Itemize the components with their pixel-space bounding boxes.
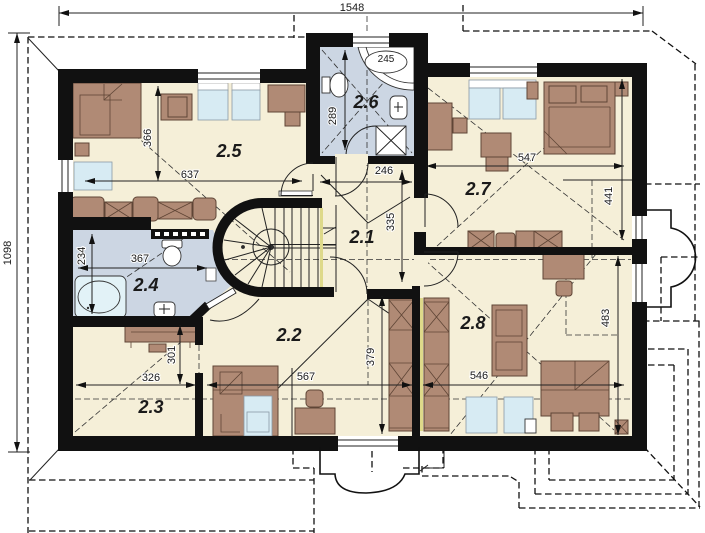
svg-text:2.8: 2.8	[459, 313, 485, 333]
svg-text:2.2: 2.2	[275, 325, 301, 345]
svg-text:366: 366	[142, 129, 154, 147]
svg-text:1098: 1098	[2, 241, 14, 265]
svg-text:546: 546	[470, 370, 488, 382]
svg-text:326: 326	[142, 372, 160, 384]
svg-text:234: 234	[76, 247, 88, 265]
svg-text:2.5: 2.5	[215, 141, 242, 161]
svg-text:567: 567	[297, 371, 315, 383]
svg-text:547: 547	[518, 152, 536, 164]
svg-text:2.1: 2.1	[348, 227, 374, 247]
svg-text:2.6: 2.6	[352, 92, 379, 112]
svg-text:483: 483	[600, 309, 612, 327]
svg-text:289: 289	[327, 107, 339, 125]
svg-text:2.7: 2.7	[464, 179, 491, 199]
svg-text:2.3: 2.3	[137, 397, 163, 417]
svg-text:245: 245	[378, 54, 395, 65]
svg-text:246: 246	[375, 165, 393, 177]
svg-text:335: 335	[385, 213, 397, 231]
svg-text:379: 379	[365, 348, 377, 366]
svg-text:637: 637	[181, 169, 199, 181]
svg-text:1548: 1548	[340, 2, 364, 14]
svg-text:2.4: 2.4	[132, 275, 158, 295]
svg-text:367: 367	[131, 253, 149, 265]
svg-text:441: 441	[603, 187, 615, 205]
svg-text:301: 301	[166, 346, 178, 364]
